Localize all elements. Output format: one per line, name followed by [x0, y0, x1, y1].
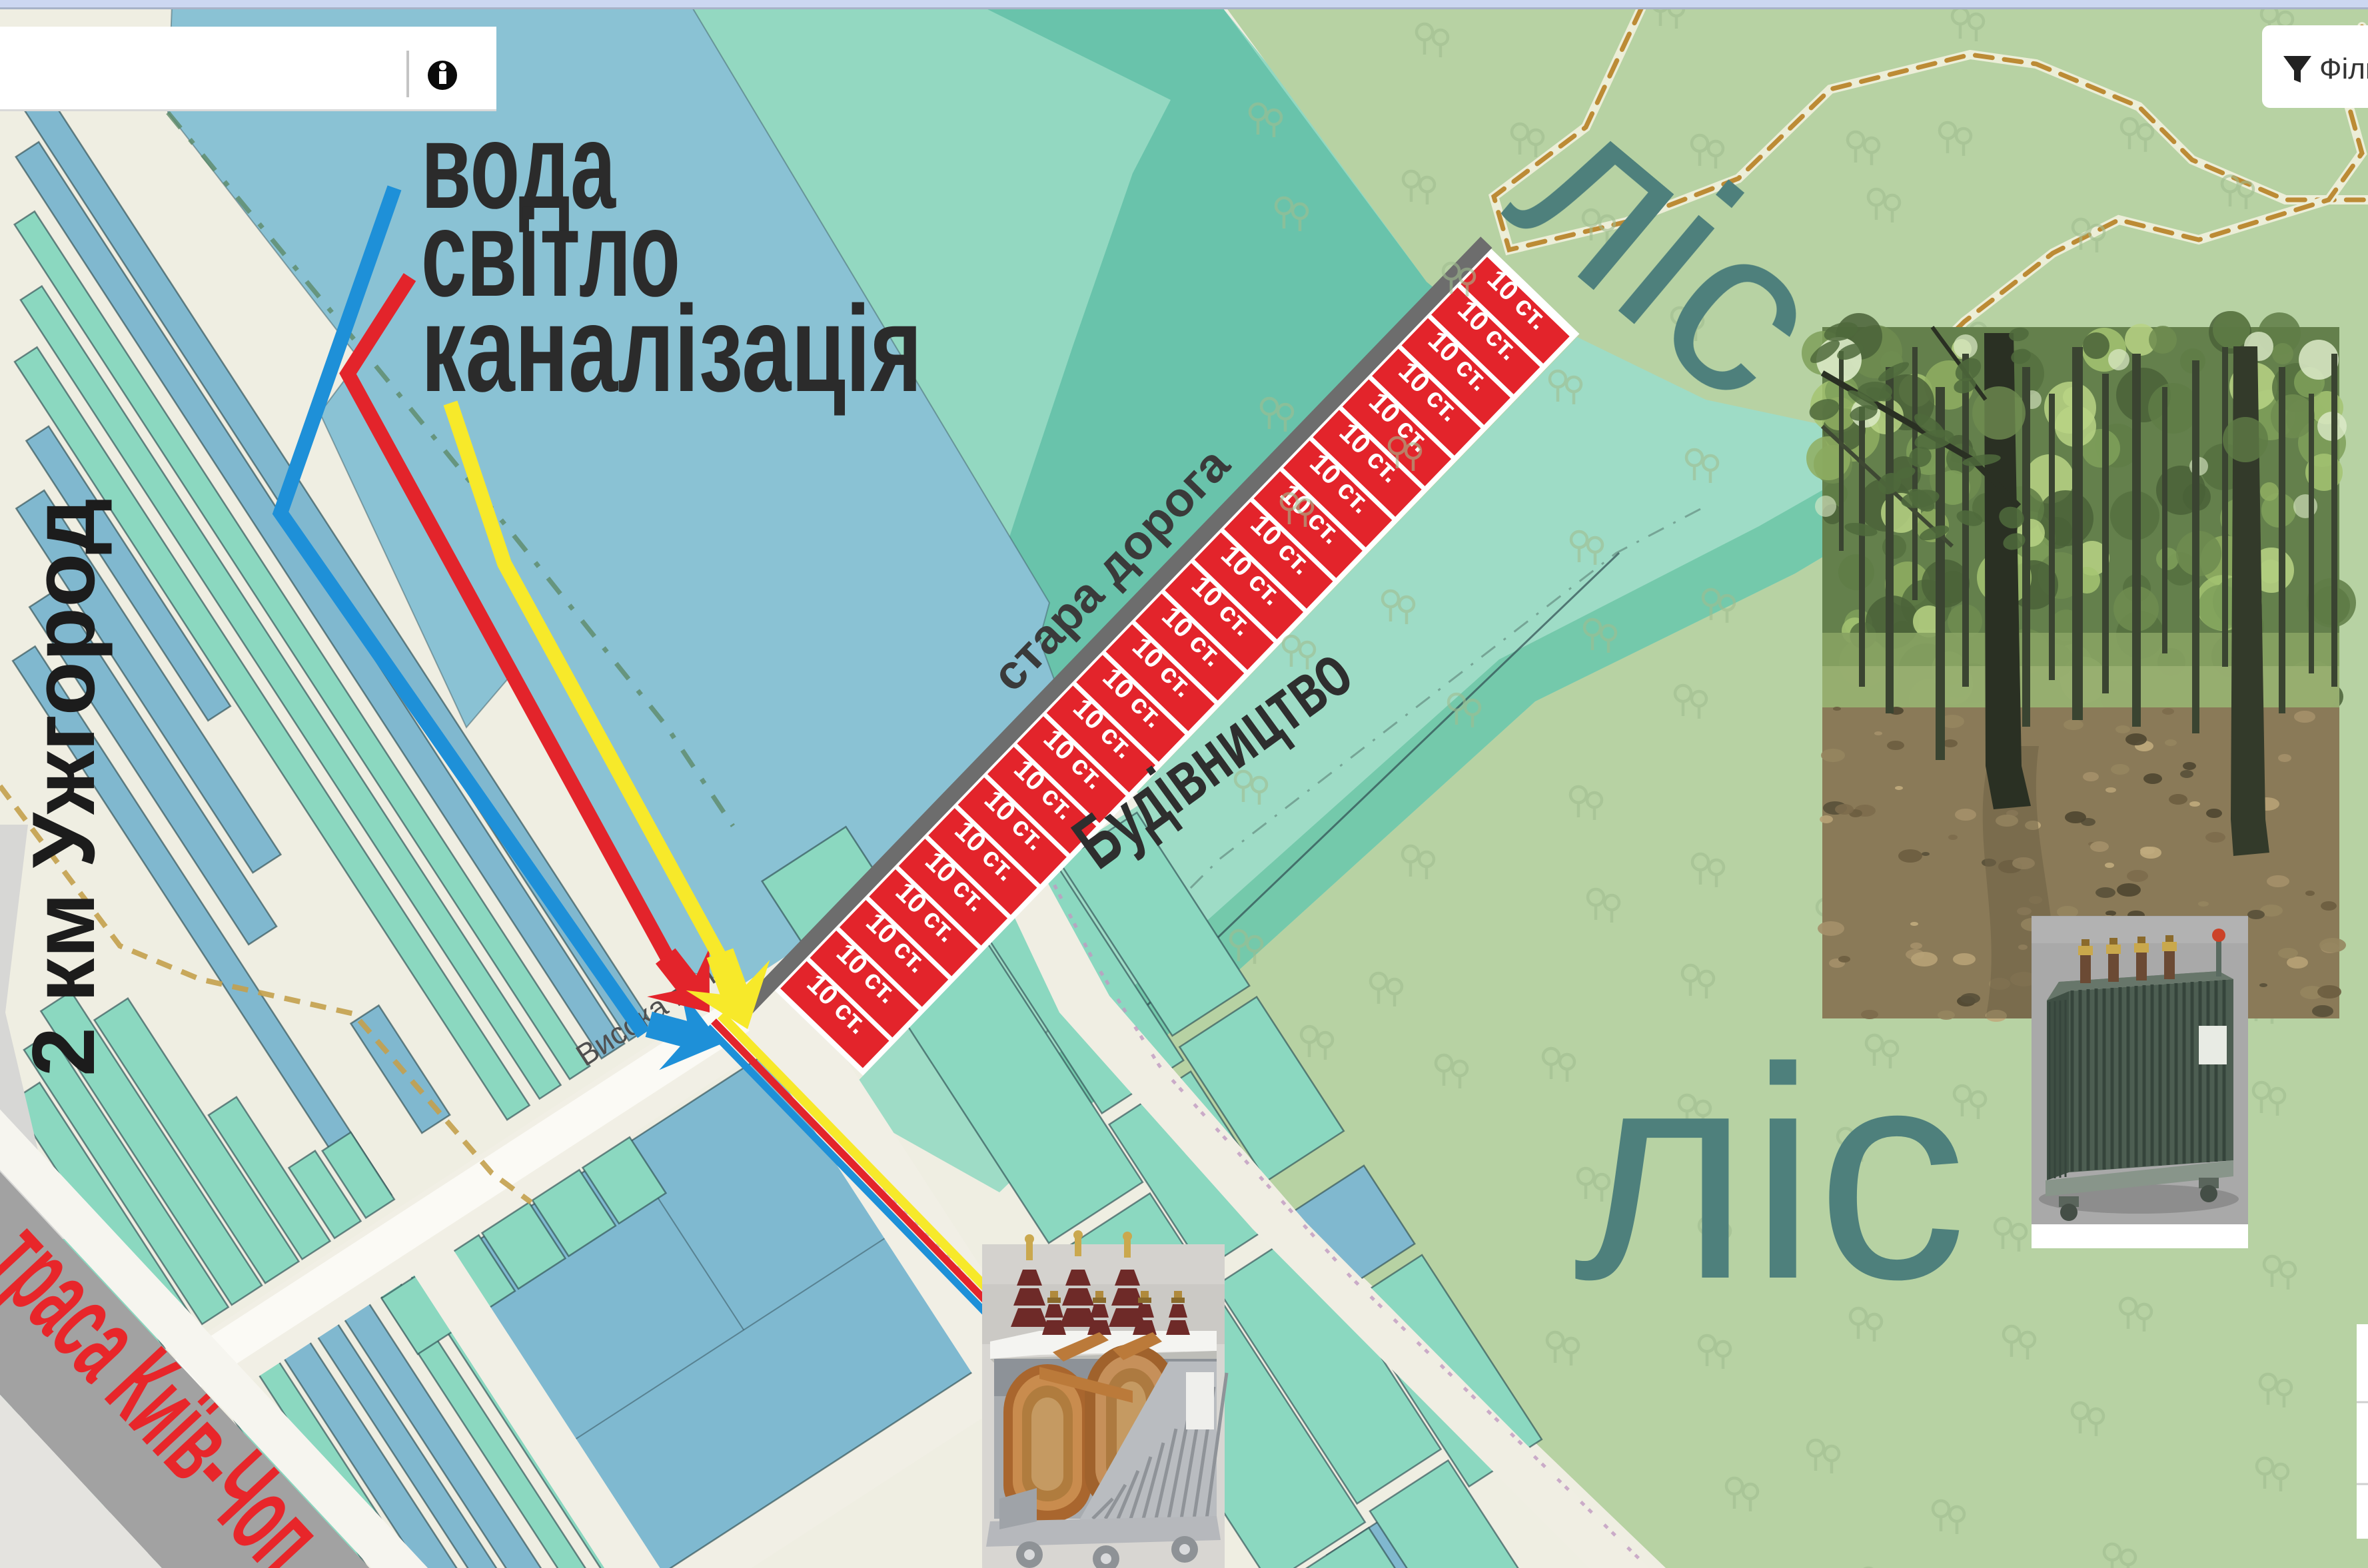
- svg-text:каналізація: каналізація: [421, 280, 922, 417]
- svg-text:2 км Ужгород: 2 км Ужгород: [15, 498, 113, 1076]
- svg-text:Фільтр: Фільтр: [2319, 53, 2368, 85]
- svg-text:ліс: ліс: [1574, 1005, 1967, 1342]
